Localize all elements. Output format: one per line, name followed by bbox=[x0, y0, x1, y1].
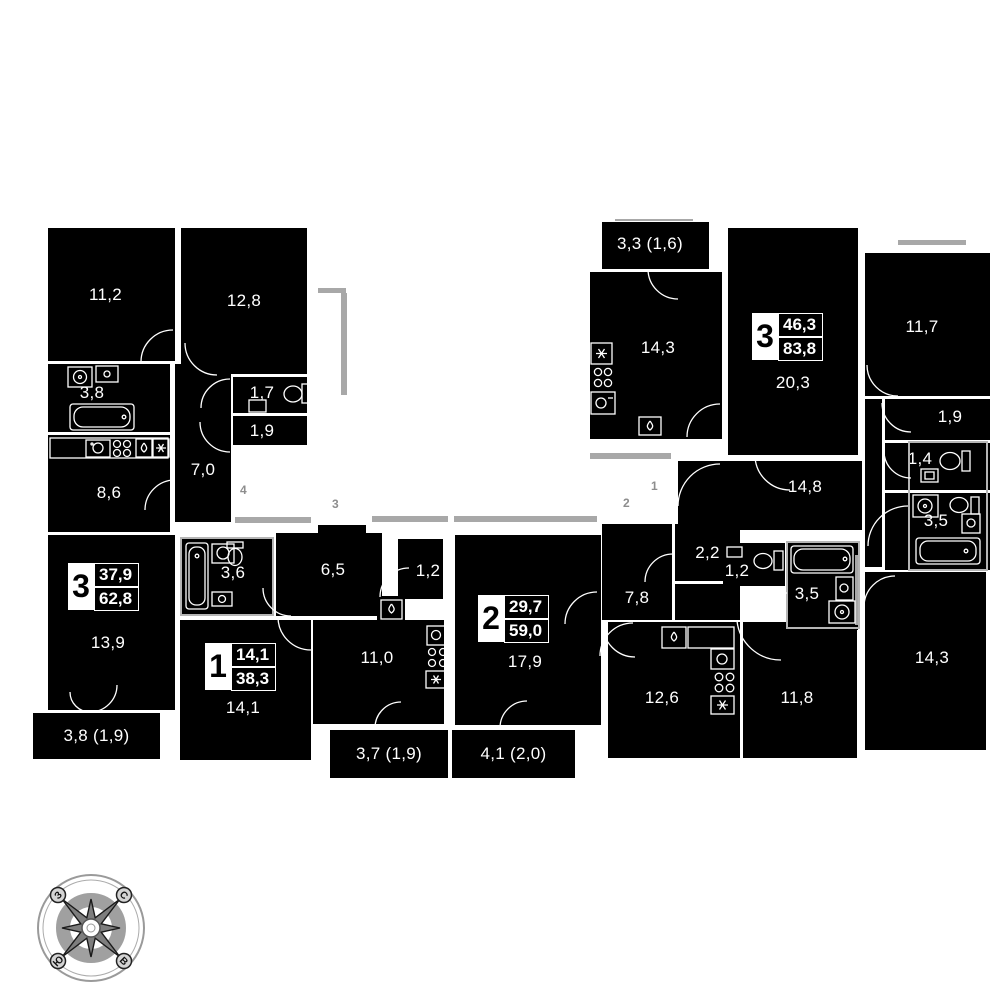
apt1-closet: 1,2 bbox=[398, 539, 443, 599]
bathroom-shaft-frame bbox=[180, 537, 274, 616]
room-area-label: 2,2 bbox=[695, 543, 720, 563]
corridor-marker-3: 3 bbox=[332, 497, 339, 511]
apt3-bedroom-2: 14,3 bbox=[865, 572, 986, 750]
room-area-label: 14,8 bbox=[788, 477, 822, 497]
room-area-label: 3,3 (1,6) bbox=[617, 234, 683, 254]
room-area-label: 12,6 bbox=[645, 688, 679, 708]
room-area-label: 8,6 bbox=[97, 483, 122, 503]
room-area-label: 1,9 bbox=[938, 407, 963, 427]
room-area-label: 6,5 bbox=[321, 560, 346, 580]
apt-left-living bbox=[48, 535, 175, 710]
room-area-label: 1,2 bbox=[725, 561, 750, 581]
room-area-label: 11,2 bbox=[89, 285, 122, 305]
total-area: 59,0 bbox=[504, 619, 549, 643]
parapet-rail bbox=[235, 517, 311, 523]
apt-left-wc: 1,7 bbox=[233, 377, 307, 413]
room-area-label: 13,9 bbox=[91, 633, 125, 653]
room-area-label: 11,0 bbox=[360, 648, 393, 668]
apartment-badge-3: 3 46,383,8 bbox=[752, 313, 823, 361]
apt2-balcony: 4,1 (2,0) bbox=[452, 730, 575, 778]
parapet-rail bbox=[372, 516, 448, 522]
room-area-label: 14,3 bbox=[915, 648, 949, 668]
total-area: 38,3 bbox=[231, 667, 276, 691]
parapet-rail bbox=[590, 453, 671, 459]
parapet-rail bbox=[615, 219, 693, 221]
corridor-marker-2: 2 bbox=[623, 496, 630, 510]
room-area-label: 4,1 (2,0) bbox=[480, 744, 546, 764]
room-area-label: 14,3 bbox=[641, 338, 675, 358]
floor-plan: 11,2 12,8 3,8 7,0 1,7 1,9 8,6 3,8 (1,9) … bbox=[0, 0, 1000, 1000]
room-area-label: 1,7 bbox=[250, 383, 275, 403]
apt1-riser-box bbox=[377, 596, 405, 622]
total-area: 83,8 bbox=[778, 337, 823, 361]
compass-rose-icon: З С Ю В bbox=[25, 862, 155, 992]
apt3-corridor: 14,8 bbox=[678, 461, 862, 530]
room-area-label: 3,7 (1,9) bbox=[356, 744, 422, 764]
room-area-label: 11,8 bbox=[780, 688, 813, 708]
corridor-marker-4: 4 bbox=[240, 483, 247, 497]
apartment-badge-2: 2 29,759,0 bbox=[478, 595, 549, 643]
room-area-label: 3,8 (1,9) bbox=[63, 726, 129, 746]
apt2-kitchen: 12,6 bbox=[608, 622, 740, 758]
apt3-balcony: 3,3 (1,6) bbox=[602, 222, 709, 269]
apt-left-hall: 7,0 bbox=[175, 364, 231, 522]
rooms-count: 2 bbox=[478, 595, 504, 642]
apt1-balcony: 3,7 (1,9) bbox=[330, 730, 448, 778]
apt3-kitchen: 14,3 bbox=[590, 272, 722, 439]
parapet-rail bbox=[898, 240, 966, 245]
living-area: 29,7 bbox=[504, 595, 549, 619]
bathroom-shaft-frame bbox=[908, 441, 988, 571]
apt-left-bedroom-1: 11,2 bbox=[48, 228, 175, 361]
apt1-kitchen: 11,0 bbox=[313, 620, 444, 724]
rooms-count: 1 bbox=[205, 643, 231, 690]
entrance-vestibule bbox=[318, 525, 366, 540]
apt-left-hall-small: 1,9 bbox=[233, 416, 307, 445]
apt3-hall-strip bbox=[865, 399, 882, 567]
corridor-marker-1: 1 bbox=[651, 479, 658, 493]
apt2-bedroom: 11,8 bbox=[743, 622, 857, 758]
apt-left-bedroom-2: 12,8 bbox=[181, 228, 307, 374]
bathroom-shaft-frame bbox=[786, 541, 860, 629]
living-area: 14,1 bbox=[231, 643, 276, 667]
room-area-label: 12,8 bbox=[227, 291, 261, 311]
room-area-label: 3,8 bbox=[80, 383, 105, 403]
room-area-label: 1,9 bbox=[250, 421, 275, 441]
total-area: 62,8 bbox=[94, 587, 139, 611]
apt1-hall: 6,5 bbox=[276, 533, 382, 616]
room-area-label: 11,7 bbox=[905, 317, 938, 337]
room-area-label: 14,1 bbox=[226, 698, 260, 718]
room-area-label: 7,0 bbox=[191, 460, 216, 480]
apt3-bedroom-1: 11,7 bbox=[865, 253, 990, 396]
apt2-hall: 7,8 bbox=[602, 524, 672, 620]
apt3-closet: 1,9 bbox=[885, 399, 990, 440]
apt-left-kitchen: 8,6 bbox=[48, 435, 170, 532]
parapet-rail bbox=[454, 516, 597, 522]
living-area: 46,3 bbox=[778, 313, 823, 337]
room-area-label: 17,9 bbox=[508, 652, 542, 672]
rooms-count: 3 bbox=[752, 313, 778, 360]
room-area-label: 7,8 bbox=[625, 588, 650, 608]
apt2-wc: 1,2 bbox=[723, 543, 785, 586]
apartment-badge-left: 3 37,962,8 bbox=[68, 563, 139, 611]
room-area-label: 20,3 bbox=[776, 373, 810, 393]
apt2-hall-connector bbox=[675, 584, 740, 620]
adjacent-wall-line bbox=[341, 293, 347, 395]
living-area: 37,9 bbox=[94, 563, 139, 587]
apt-left-balcony: 3,8 (1,9) bbox=[33, 713, 160, 759]
apt-left-bathroom: 3,8 bbox=[48, 364, 170, 432]
rooms-count: 3 bbox=[68, 563, 94, 610]
apartment-badge-1: 1 14,138,3 bbox=[205, 643, 276, 691]
room-area-label: 1,2 bbox=[416, 561, 441, 581]
